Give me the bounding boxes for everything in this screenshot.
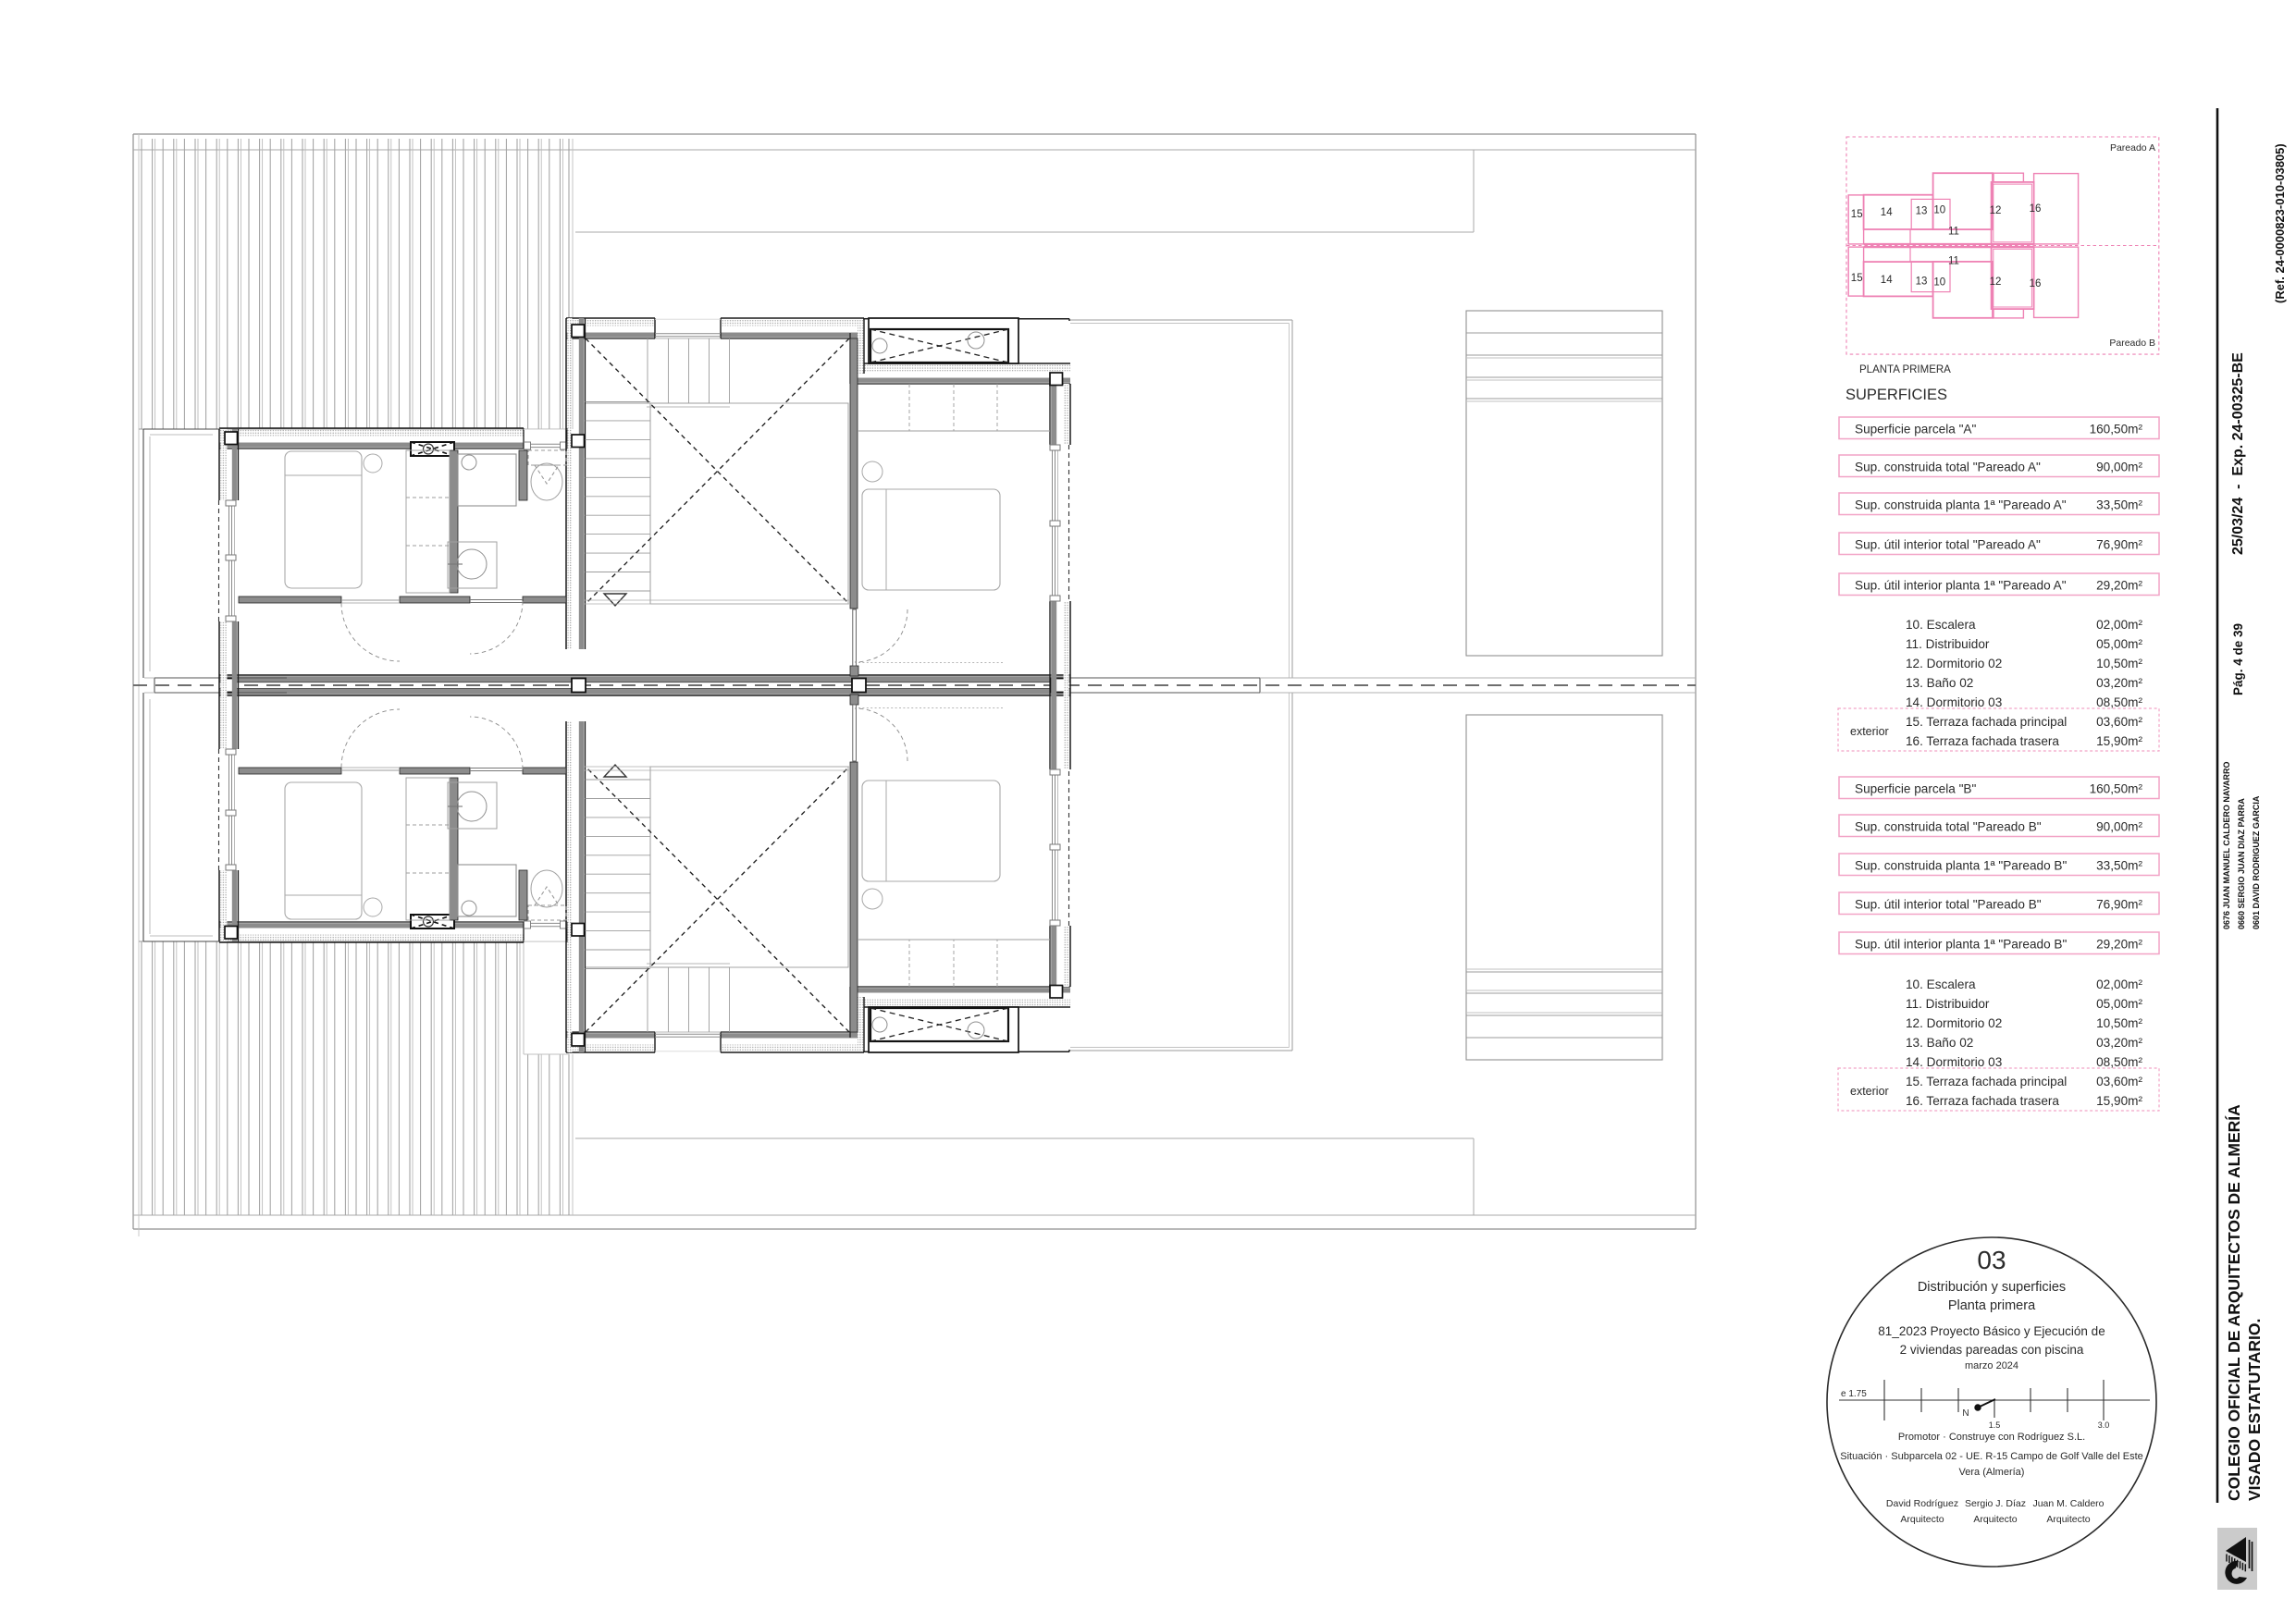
svg-text:David Rodríguez: David Rodríguez xyxy=(1886,1498,1958,1509)
svg-text:03,60m²: 03,60m² xyxy=(2096,715,2142,729)
svg-text:13. Baño 02: 13. Baño 02 xyxy=(1906,676,1973,690)
svg-text:11. Distribuidor: 11. Distribuidor xyxy=(1906,997,1990,1011)
svg-text:33,50m²: 33,50m² xyxy=(2096,859,2142,873)
svg-text:16. Terraza fachada trasera: 16. Terraza fachada trasera xyxy=(1906,1094,2059,1108)
svg-text:16: 16 xyxy=(2030,203,2042,215)
svg-text:11: 11 xyxy=(1948,256,1959,267)
svg-text:03,20m²: 03,20m² xyxy=(2096,676,2142,690)
svg-text:Pág. 4 de 39: Pág. 4 de 39 xyxy=(2231,623,2245,695)
svg-text:Sup. construida total "Pareado: Sup. construida total "Pareado B" xyxy=(1855,820,2042,834)
svg-text:Sup. útil interior total "Pare: Sup. útil interior total "Pareado B" xyxy=(1855,898,2042,912)
svg-text:10,50m²: 10,50m² xyxy=(2096,1016,2142,1030)
svg-text:11: 11 xyxy=(1948,227,1959,238)
svg-text:Situación · Subparcela 02 - UE: Situación · Subparcela 02 - UE. R-15 Cam… xyxy=(1840,1451,2143,1462)
svg-text:05,00m²: 05,00m² xyxy=(2096,997,2142,1011)
svg-text:05,00m²: 05,00m² xyxy=(2096,637,2142,651)
svg-text:160,50m²: 160,50m² xyxy=(2090,782,2143,796)
svg-text:Sup. construida planta 1ª "Par: Sup. construida planta 1ª "Pareado B" xyxy=(1855,859,2067,873)
svg-text:15: 15 xyxy=(1851,209,1863,220)
svg-text:0676 JUAN MANUEL CALDERO NAVAR: 0676 JUAN MANUEL CALDERO NAVARRO xyxy=(2222,761,2231,929)
svg-text:29,20m²: 29,20m² xyxy=(2096,938,2142,952)
svg-text:Arquitecto: Arquitecto xyxy=(1973,1514,2017,1525)
svg-text:08,50m²: 08,50m² xyxy=(2096,695,2142,709)
svg-text:15: 15 xyxy=(1851,273,1863,284)
svg-text:90,00m²: 90,00m² xyxy=(2096,820,2142,834)
svg-text:13. Baño 02: 13. Baño 02 xyxy=(1906,1036,1973,1050)
svg-text:33,50m²: 33,50m² xyxy=(2096,498,2142,512)
svg-text:25/03/24 - Exp. 24-00325-BE: 25/03/24 - Exp. 24-00325-BE xyxy=(2230,352,2246,555)
svg-text:Distribución y superficies: Distribución y superficies xyxy=(1918,1280,2066,1295)
svg-text:marzo 2024: marzo 2024 xyxy=(1965,1360,2018,1371)
svg-text:10,50m²: 10,50m² xyxy=(2096,657,2142,670)
svg-text:15,90m²: 15,90m² xyxy=(2096,734,2142,748)
svg-text:160,50m²: 160,50m² xyxy=(2090,423,2143,436)
svg-text:81_2023 Proyecto Básico y Ejec: 81_2023 Proyecto Básico y Ejecución de xyxy=(1878,1324,2105,1338)
svg-text:03,60m²: 03,60m² xyxy=(2096,1075,2142,1088)
svg-text:15. Terraza fachada principal: 15. Terraza fachada principal xyxy=(1906,1075,2067,1088)
svg-text:Sup. construida total "Pareado: Sup. construida total "Pareado A" xyxy=(1855,461,2041,474)
svg-text:13: 13 xyxy=(1916,277,1928,288)
svg-text:2 viviendas pareadas con pisci: 2 viviendas pareadas con piscina xyxy=(1900,1343,2084,1357)
svg-text:SUPERFICIES: SUPERFICIES xyxy=(1845,387,1947,403)
svg-text:02,00m²: 02,00m² xyxy=(2096,618,2142,632)
svg-text:Pareado A: Pareado A xyxy=(2110,142,2155,154)
svg-text:0601 DAVID RODRIGUEZ GARCIA: 0601 DAVID RODRIGUEZ GARCIA xyxy=(2252,795,2261,929)
svg-text:90,00m²: 90,00m² xyxy=(2096,461,2142,474)
svg-text:76,90m²: 76,90m² xyxy=(2096,898,2142,912)
svg-text:12: 12 xyxy=(1990,205,2002,216)
svg-text:1.5: 1.5 xyxy=(1989,1420,2001,1430)
svg-text:Superficie parcela "B": Superficie parcela "B" xyxy=(1855,782,1976,796)
svg-text:N: N xyxy=(1962,1408,1969,1419)
svg-text:12. Dormitorio 02: 12. Dormitorio 02 xyxy=(1906,657,2002,670)
svg-text:10: 10 xyxy=(1933,277,1945,289)
svg-text:15. Terraza fachada principal: 15. Terraza fachada principal xyxy=(1906,715,2067,729)
svg-text:Sup. construida planta 1ª "Par: Sup. construida planta 1ª "Pareado A" xyxy=(1855,498,2067,512)
svg-text:Sup. útil interior planta 1ª ": Sup. útil interior planta 1ª "Pareado B" xyxy=(1855,938,2067,952)
svg-text:29,20m²: 29,20m² xyxy=(2096,579,2142,593)
svg-text:16. Terraza fachada trasera: 16. Terraza fachada trasera xyxy=(1906,734,2059,748)
svg-text:13: 13 xyxy=(1916,206,1928,217)
svg-text:02,00m²: 02,00m² xyxy=(2096,977,2142,991)
svg-text:16: 16 xyxy=(2030,278,2042,289)
svg-text:exterior: exterior xyxy=(1850,1085,1889,1098)
svg-text:VISADO ESTATUTARIO.: VISADO ESTATUTARIO. xyxy=(2245,1319,2264,1501)
svg-text:Pareado B: Pareado B xyxy=(2109,338,2155,349)
svg-text:PLANTA PRIMERA: PLANTA PRIMERA xyxy=(1859,364,1951,375)
svg-text:Sup. útil interior total "Pare: Sup. útil interior total "Pareado A" xyxy=(1855,538,2041,552)
svg-text:10. Escalera: 10. Escalera xyxy=(1906,618,1976,632)
svg-text:exterior: exterior xyxy=(1850,725,1889,738)
svg-text:14: 14 xyxy=(1881,207,1893,218)
svg-text:(Ref. 24-0000823-010-03805): (Ref. 24-0000823-010-03805) xyxy=(2273,143,2287,303)
svg-text:Promotor · Construye con Rodrí: Promotor · Construye con Rodríguez S.L. xyxy=(1898,1432,2085,1443)
svg-text:14. Dormitorio 03: 14. Dormitorio 03 xyxy=(1906,695,2002,709)
svg-text:15,90m²: 15,90m² xyxy=(2096,1094,2142,1108)
svg-text:Superficie parcela "A": Superficie parcela "A" xyxy=(1855,423,1976,436)
svg-text:14. Dormitorio 03: 14. Dormitorio 03 xyxy=(1906,1055,2002,1069)
svg-text:12: 12 xyxy=(1990,277,2002,288)
svg-text:11. Distribuidor: 11. Distribuidor xyxy=(1906,637,1990,651)
svg-text:12. Dormitorio 02: 12. Dormitorio 02 xyxy=(1906,1016,2002,1030)
svg-text:08,50m²: 08,50m² xyxy=(2096,1055,2142,1069)
svg-text:03: 03 xyxy=(1977,1246,2006,1274)
svg-text:Arquitecto: Arquitecto xyxy=(1900,1514,1944,1525)
svg-text:Planta primera: Planta primera xyxy=(1948,1298,2036,1313)
svg-text:Juan M. Caldero: Juan M. Caldero xyxy=(2032,1498,2104,1509)
svg-text:Arquitecto: Arquitecto xyxy=(2046,1514,2090,1525)
svg-text:3.0: 3.0 xyxy=(2098,1420,2110,1430)
svg-text:Sup. útil interior planta 1ª ": Sup. útil interior planta 1ª "Pareado A" xyxy=(1855,579,2067,593)
svg-text:14: 14 xyxy=(1881,275,1893,286)
svg-text:0660 SERGIO JUAN DIAZ PARRA: 0660 SERGIO JUAN DIAZ PARRA xyxy=(2237,798,2246,929)
svg-text:76,90m²: 76,90m² xyxy=(2096,538,2142,552)
svg-text:03,20m²: 03,20m² xyxy=(2096,1036,2142,1050)
svg-text:Vera (Almería): Vera (Almería) xyxy=(1959,1467,2025,1478)
svg-text:10: 10 xyxy=(1933,205,1945,216)
svg-text:COLEGIO OFICIAL DE ARQUITECTOS: COLEGIO OFICIAL DE ARQUITECTOS DE ALMERÍ… xyxy=(2224,1104,2243,1501)
svg-text:Sergio J. Díaz: Sergio J. Díaz xyxy=(1965,1498,2026,1509)
svg-text:e 1.75: e 1.75 xyxy=(1841,1389,1867,1399)
svg-text:10. Escalera: 10. Escalera xyxy=(1906,977,1976,991)
